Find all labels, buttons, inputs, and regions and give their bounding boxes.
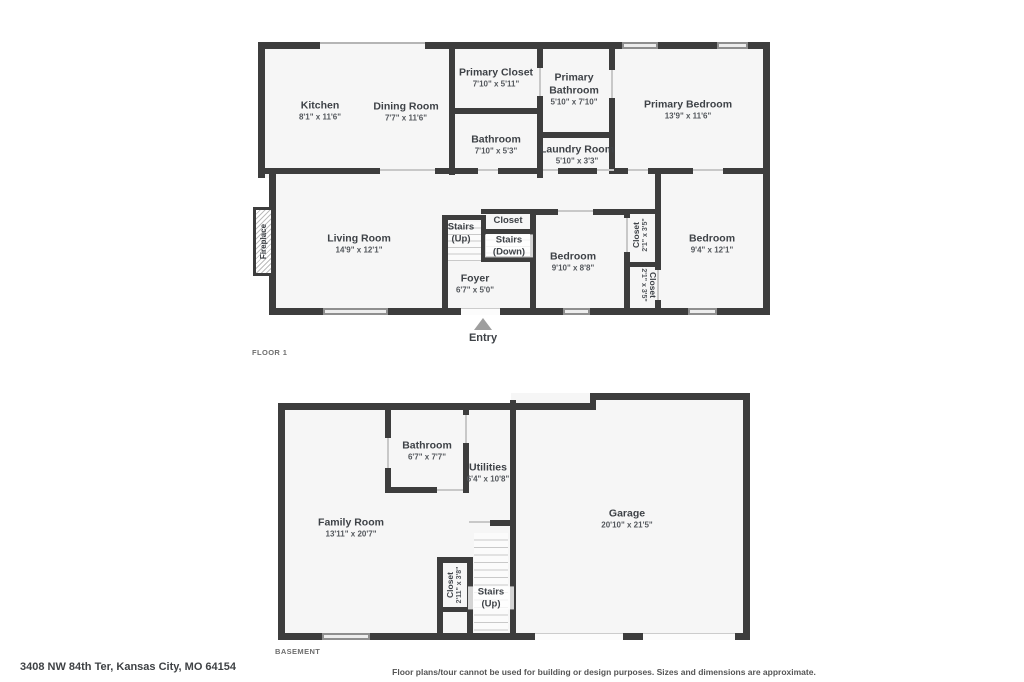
wall — [530, 209, 558, 215]
wall — [278, 633, 322, 640]
door-opening — [437, 489, 463, 491]
floor1-plan: Fireplace Kitchen 8'1" x 11'6" Dining Ro… — [258, 42, 770, 315]
room-label-dining-room: Dining Room 7'7" x 11'6" — [360, 101, 452, 124]
door-opening — [626, 218, 628, 252]
wall — [735, 633, 750, 640]
door-opening — [478, 169, 498, 171]
wall — [590, 393, 596, 410]
wall — [558, 168, 597, 174]
wall — [624, 252, 630, 308]
basement-plan: Bathroom 6'7" x 7'7" Utilities 6'4" x 10… — [278, 393, 750, 640]
wall — [498, 168, 543, 174]
door-opening — [380, 169, 435, 171]
entry-door-opening — [461, 308, 500, 315]
room-label-basement-stairs-up: Stairs (Up) — [468, 586, 514, 609]
window — [717, 42, 748, 49]
door-opening — [469, 521, 490, 523]
room-label-garage: Garage 20'10" x 21'5" — [577, 508, 677, 531]
wall — [481, 209, 536, 214]
room-label-foyer: Foyer 6'7" x 5'0" — [440, 273, 510, 296]
door-opening — [693, 169, 723, 171]
wall — [609, 42, 615, 70]
entry-arrow-icon — [474, 318, 492, 330]
wall — [258, 42, 265, 178]
wall — [623, 633, 643, 640]
room-label-bedroom-1: Bedroom 9'10" x 8'8" — [533, 251, 613, 274]
wall — [763, 42, 770, 315]
room-label-living-room: Living Room 14'9" x 12'1" — [313, 233, 405, 256]
disclaimer-text: Floor plans/tour cannot be used for buil… — [194, 667, 1014, 677]
door-opening — [628, 169, 648, 171]
room-label-bathroom: Bathroom 7'10" x 5'3" — [456, 134, 536, 157]
wall — [442, 215, 486, 220]
wall — [385, 487, 437, 493]
room-label-bedroom-2: Bedroom 9'4" x 12'1" — [672, 233, 752, 256]
door-opening — [611, 70, 613, 98]
wall — [258, 168, 380, 174]
stairs-treads — [474, 533, 508, 633]
wall — [723, 168, 770, 174]
wall — [655, 168, 661, 270]
wall — [624, 262, 661, 267]
wall — [590, 393, 750, 400]
room-label-family-room: Family Room 13'11" x 20'7" — [305, 517, 397, 540]
room-label-basement-bathroom: Bathroom 6'7" x 7'7" — [387, 440, 467, 463]
wall — [537, 42, 543, 68]
window — [688, 308, 717, 315]
basement-tag: BASEMENT — [275, 647, 320, 656]
wall — [614, 168, 628, 174]
door-opening — [543, 169, 558, 171]
wall — [278, 403, 285, 640]
door-opening — [558, 210, 593, 212]
room-label-stair-closet: Closet — [485, 215, 531, 227]
room-label-kitchen: Kitchen 8'1" x 11'6" — [280, 100, 360, 123]
wall — [435, 168, 478, 174]
garage-door-opening — [643, 633, 735, 640]
wall — [437, 557, 443, 640]
wall — [385, 403, 391, 438]
room-label-closet-2: Closet 2'1" x 3'5" — [639, 268, 657, 301]
room-label-closet-1: Closet 2'1" x 3'5" — [632, 218, 650, 251]
wall — [490, 520, 510, 526]
garage-door-opening — [535, 633, 623, 640]
entry-label: Entry — [453, 332, 513, 344]
window — [322, 633, 370, 640]
wall — [540, 132, 615, 138]
room-label-laundry-room: Laundry Room 5'10" x 3'3" — [531, 144, 623, 167]
door-opening — [597, 169, 614, 171]
wall — [743, 393, 750, 640]
room-label-utilities: Utilities 6'4" x 10'8" — [453, 462, 523, 485]
room-label-basement-closet: Closet 2'11" x 3'8" — [446, 567, 464, 604]
wall — [278, 403, 596, 410]
floor1-tag: FLOOR 1 — [252, 348, 287, 357]
window — [622, 42, 658, 49]
window — [563, 308, 590, 315]
wall — [452, 108, 543, 114]
wall — [624, 209, 630, 218]
room-label-primary-bathroom: Primary Bathroom 5'10" x 7'10" — [544, 71, 604, 106]
fireplace: Fireplace — [253, 207, 274, 276]
room-label-stairs-down: Stairs (Down) — [485, 234, 533, 257]
wall — [463, 403, 469, 415]
room-label-stairs-up: Stairs (Up) — [441, 221, 481, 244]
window — [323, 308, 388, 315]
room-label-primary-closet: Primary Closet 7'10" x 5'11" — [450, 67, 542, 90]
window — [320, 42, 425, 49]
fireplace-label: Fireplace — [259, 224, 268, 259]
room-label-primary-bedroom: Primary Bedroom 13'9" x 11'6" — [633, 99, 743, 122]
